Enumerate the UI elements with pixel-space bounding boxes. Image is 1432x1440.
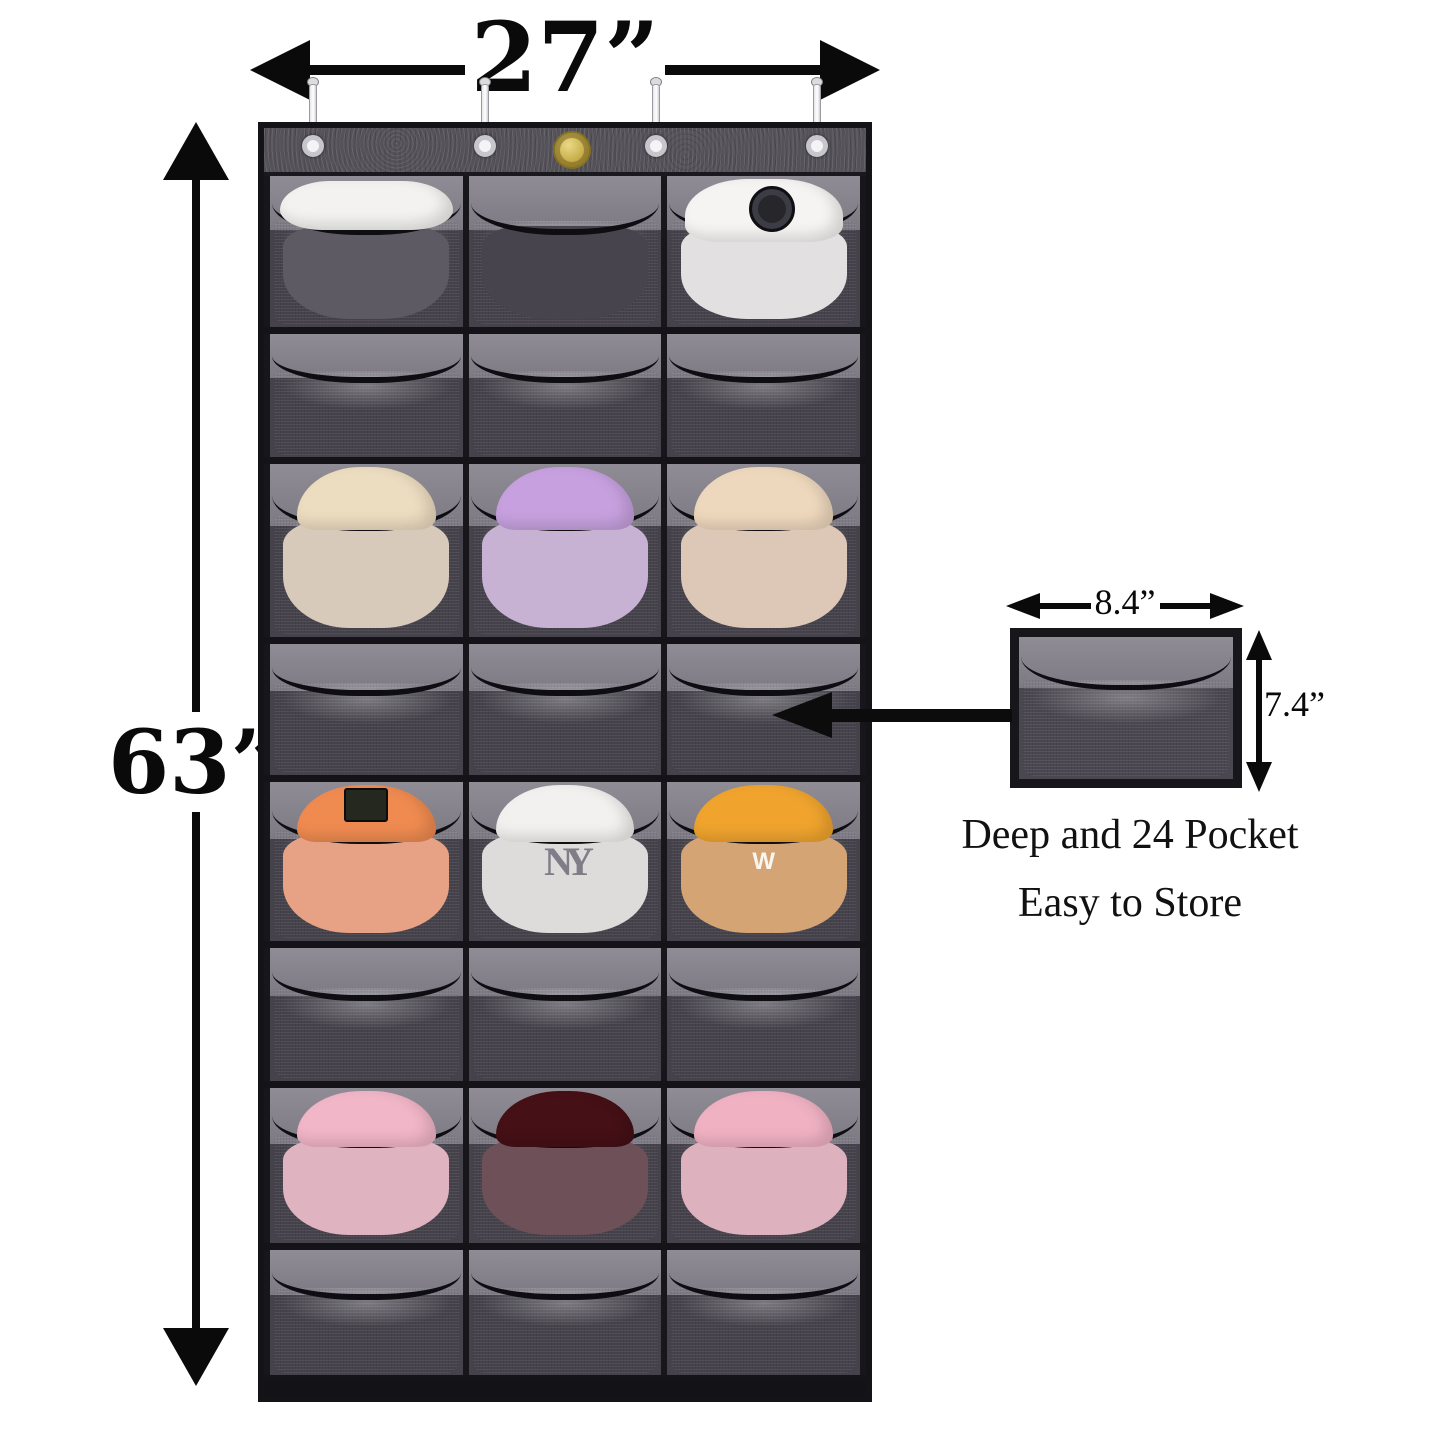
pocket-mesh-front — [274, 683, 459, 772]
hat-body: W — [681, 834, 847, 933]
mesh-pocket-empty — [469, 334, 662, 457]
hanging-organizer: NYW — [258, 122, 872, 1402]
pocket-width-label: 8.4” — [1095, 584, 1156, 620]
w-logo: W — [752, 848, 775, 876]
organizer-bottom-bar — [264, 1382, 866, 1396]
product-image: 27” 63” NYW 8.4” 7.4” Deep a — [0, 0, 1432, 1440]
hat-body — [283, 834, 449, 933]
mesh-pocket-yellow-hat: W — [667, 782, 860, 941]
arrow-left-icon — [250, 40, 310, 100]
organizer-row — [264, 1250, 866, 1382]
mesh-pocket-empty — [469, 644, 662, 775]
mesh-pocket-empty — [270, 1250, 463, 1375]
mesh-pocket-empty — [667, 948, 860, 1081]
mesh-pocket-pink-hat — [270, 1088, 463, 1243]
ny-logo: NY — [544, 842, 586, 882]
mesh-pocket-empty — [469, 1250, 662, 1375]
mesh-pocket-empty — [270, 948, 463, 1081]
inset-caption: Deep and 24 Pocket Easy to Store — [948, 810, 1312, 929]
width-dimension: 27” — [250, 24, 880, 116]
mesh-pocket-empty — [469, 948, 662, 1081]
mesh-pocket-white-visor-cap — [270, 176, 463, 327]
mesh-pocket-white-bucket-hat — [667, 176, 860, 327]
organizer-rows: NYW — [264, 176, 866, 1382]
pocket-mesh-front — [473, 683, 658, 772]
pocket-mesh-front — [274, 1288, 459, 1373]
organizer-row: NYW — [264, 782, 866, 948]
hat-label-patch — [344, 788, 388, 822]
pocket-mesh-front — [671, 1288, 856, 1373]
pocket-height-label: 7.4” — [1262, 684, 1327, 724]
pocket-mesh-front — [274, 371, 459, 455]
arrow-right-icon — [1210, 593, 1244, 619]
dimension-line — [1160, 603, 1211, 609]
mesh-pocket-empty — [270, 644, 463, 775]
pocket-mesh-front — [473, 1288, 658, 1373]
mesh-pocket-cream-hat — [270, 464, 463, 637]
mesh-pocket-empty — [667, 334, 860, 457]
dimension-line — [310, 65, 465, 75]
mesh-pocket-orange-hat — [270, 782, 463, 941]
dark-circle-logo — [749, 186, 795, 232]
door-hook-stem — [652, 84, 660, 126]
mesh-pocket-maroon-hat — [469, 1088, 662, 1243]
mesh-pocket-pink-hat — [667, 1088, 860, 1243]
caption-line-2: Easy to Store — [948, 878, 1312, 928]
height-label: 63” — [108, 712, 268, 812]
organizer-row — [264, 334, 866, 464]
width-label: 27” — [471, 10, 660, 106]
arrow-up-icon — [1246, 630, 1272, 660]
pointer-arrow-shaft — [830, 709, 1012, 722]
hat-body — [681, 521, 847, 628]
metal-grommet-icon — [474, 135, 496, 157]
hat-crown — [280, 181, 453, 231]
gold-brand-badge — [553, 131, 591, 169]
hat-body — [681, 1139, 847, 1235]
pocket-mesh-front — [473, 371, 658, 455]
hat-body — [482, 226, 648, 320]
pocket-detail-inset — [1010, 628, 1242, 788]
pocket-mesh-front — [473, 988, 658, 1078]
hat-body — [482, 521, 648, 628]
door-hook-stem — [481, 84, 489, 126]
organizer-row — [264, 176, 866, 334]
door-hook-stem — [309, 84, 317, 126]
hat-body — [482, 1139, 648, 1235]
metal-grommet-icon — [806, 135, 828, 157]
hat-body — [283, 1139, 449, 1235]
pocket-mesh-front — [1023, 680, 1228, 777]
arrow-down-icon — [163, 1328, 229, 1386]
arrow-left-icon — [1006, 593, 1040, 619]
organizer-header-band — [264, 128, 866, 176]
pocket-mesh-front — [671, 371, 856, 455]
hat-body: NY — [482, 834, 648, 933]
pocket-mesh-front — [274, 988, 459, 1078]
pointer-arrow-head-icon — [772, 692, 832, 738]
hat-crown — [685, 179, 843, 242]
hat-body — [283, 521, 449, 628]
mesh-pocket-white-ny-cap: NY — [469, 782, 662, 941]
organizer-row — [264, 1088, 866, 1250]
dimension-line — [1040, 603, 1091, 609]
dimension-line — [665, 65, 820, 75]
caption-line-1: Deep and 24 Pocket — [948, 810, 1312, 860]
arrow-down-icon — [1246, 762, 1272, 792]
door-hook-stem — [813, 84, 821, 126]
organizer-row — [264, 464, 866, 644]
hat-body — [283, 226, 449, 320]
arrow-up-icon — [163, 122, 229, 180]
organizer-row — [264, 948, 866, 1088]
metal-grommet-icon — [302, 135, 324, 157]
mesh-pocket-empty — [270, 334, 463, 457]
mesh-pocket-lavender-hat — [469, 464, 662, 637]
pocket-width-dimension: 8.4” — [1006, 584, 1244, 628]
mesh-pocket-empty — [667, 1250, 860, 1375]
pocket-mesh-front — [671, 988, 856, 1078]
mesh-pocket-peach-hat — [667, 464, 860, 637]
metal-grommet-icon — [645, 135, 667, 157]
mesh-pocket-dark-hat — [469, 176, 662, 327]
arrow-right-icon — [820, 40, 880, 100]
